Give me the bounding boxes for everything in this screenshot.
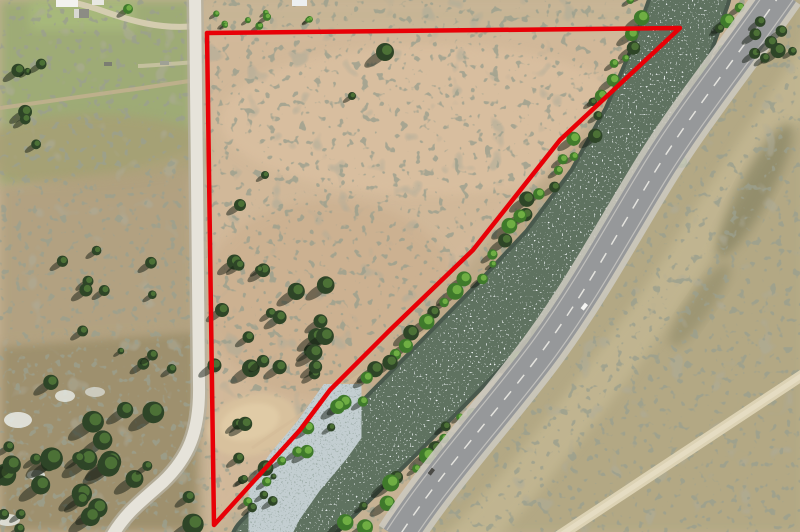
farm-building-roof (292, 0, 307, 6)
farm-building-roof (92, 0, 104, 5)
aerial-photo (0, 0, 800, 532)
light-rock-patch (55, 390, 75, 402)
light-rock-patch (4, 412, 32, 428)
farm-shed-roof-edge (74, 9, 79, 18)
farm-equipment (160, 61, 169, 65)
farm-building-roof (56, 0, 78, 7)
farm-equipment (104, 62, 112, 66)
photo-canvas (0, 0, 800, 532)
light-rock-patch (85, 387, 105, 397)
